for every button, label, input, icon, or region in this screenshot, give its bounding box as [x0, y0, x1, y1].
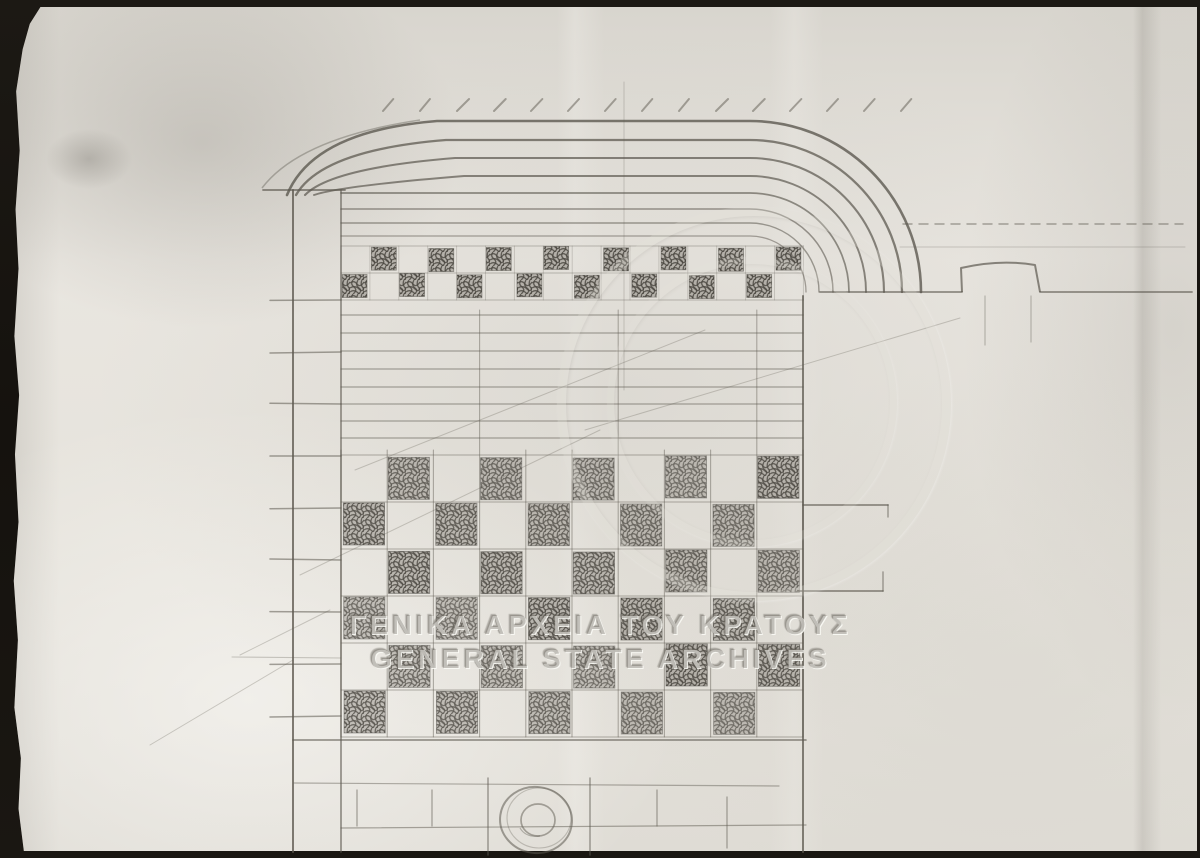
rosette-circle: [488, 778, 590, 858]
string-courses: [341, 315, 803, 438]
scanned-archive-document: ΓΕΝΙΚΑ ΑΡΧΕΙΑ ΤΟΥ ΚΡΑΤΟΥΣ GENERAL STATE …: [0, 0, 1200, 858]
pencil-sketch-arch-elevation: [0, 0, 1200, 858]
arch-moldings: [262, 120, 921, 292]
checkerboard-field: [341, 310, 803, 737]
right-panel-edge: [798, 296, 888, 852]
corbel-bump: [961, 263, 1040, 345]
right-ground-line: [820, 224, 1192, 292]
hatch-ticks: [383, 99, 911, 111]
left-pier: [232, 190, 341, 852]
construction-lines: [150, 82, 960, 745]
checkerboard-band-small: [341, 246, 803, 300]
